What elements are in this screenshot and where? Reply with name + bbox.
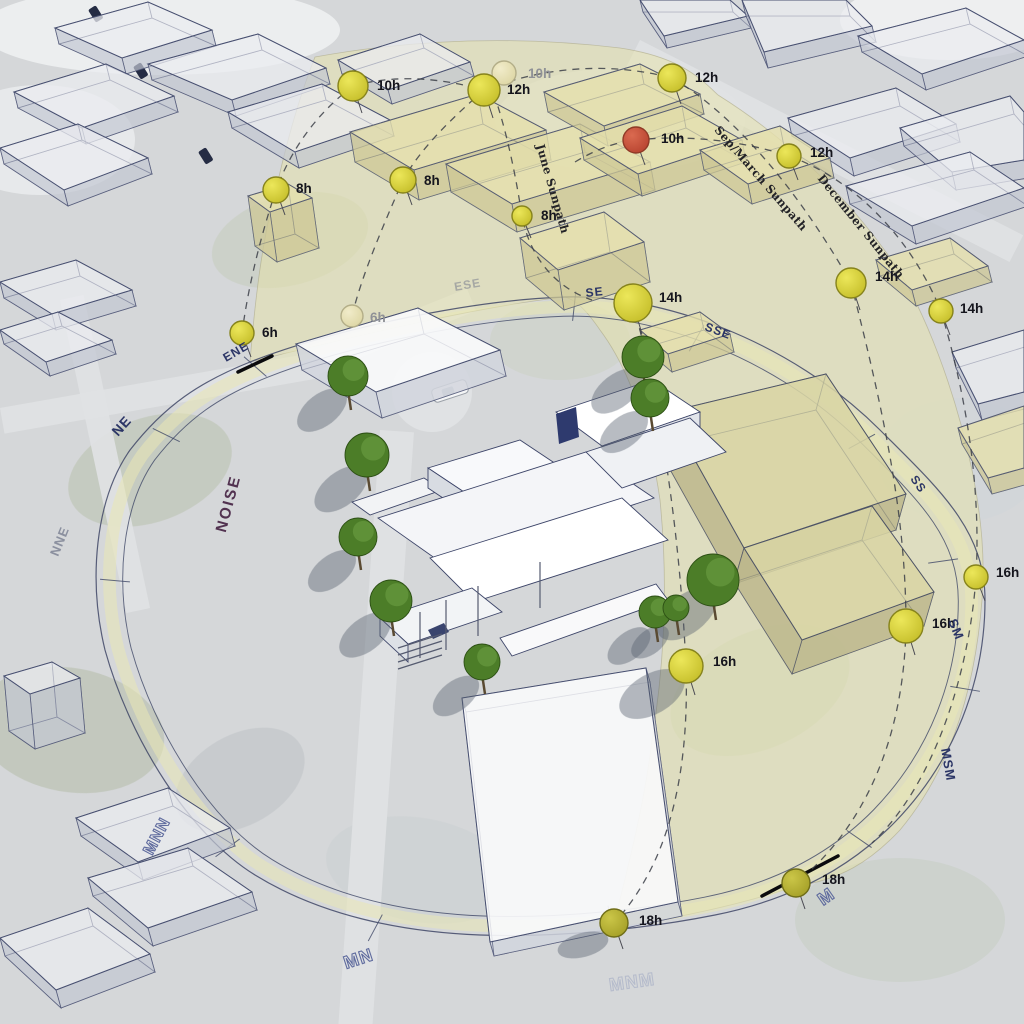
sun-hour-label: 10h — [377, 78, 400, 93]
sun-hour-label: 16h — [996, 565, 1019, 580]
sun-circle — [669, 649, 703, 683]
tree-highlight — [645, 382, 666, 403]
tree-highlight — [672, 597, 686, 611]
building — [4, 662, 85, 749]
sun-circle — [777, 144, 801, 168]
sun-circle — [338, 71, 368, 101]
sun-hour-label: 8h — [424, 173, 440, 188]
sun-hour-label: 6h — [262, 325, 278, 340]
sun-hour-label: 12h — [507, 82, 530, 97]
sun-hour-label: 18h — [639, 913, 662, 928]
sun-hour-label: 14h — [960, 301, 983, 316]
sun-hour-label: 10h — [661, 131, 684, 146]
sun-hour-label: 14h — [659, 290, 682, 305]
sun-circle — [341, 305, 363, 327]
sun-circle — [889, 609, 923, 643]
tree-highlight — [637, 339, 660, 362]
tree-highlight — [343, 359, 365, 381]
sun-circle — [600, 909, 628, 937]
tree-highlight — [385, 583, 408, 606]
sun-hour-label: 16h — [713, 654, 736, 669]
sun-hour-label: 6h — [370, 310, 386, 325]
sun-circle — [782, 869, 810, 897]
sun-circle — [623, 127, 649, 153]
tree-highlight — [706, 558, 735, 587]
tree-highlight — [353, 521, 374, 542]
sun-circle — [512, 206, 532, 226]
sun-circle — [263, 177, 289, 203]
tree-highlight — [477, 647, 497, 667]
sun-hour-label: 12h — [810, 145, 833, 160]
sun-circle — [614, 284, 652, 322]
diagram-canvas: 6h6h8h8h8h10h10h10h12h12h12h14h14h14h16h… — [0, 0, 1024, 1024]
sun-circle — [658, 64, 686, 92]
sunpath-diagram: 6h6h8h8h8h10h10h10h12h12h12h14h14h14h16h… — [0, 0, 1024, 1024]
sun-hour-label: 12h — [695, 70, 718, 85]
sun-circle — [390, 167, 416, 193]
sun-circle — [468, 74, 500, 106]
sun-circle — [929, 299, 953, 323]
sun-hour-label: 10h — [528, 66, 551, 81]
compass-label: SE — [585, 284, 604, 300]
sun-hour-label: 8h — [296, 181, 312, 196]
sun-circle — [964, 565, 988, 589]
tree-highlight — [361, 436, 385, 460]
sun-circle — [836, 268, 866, 298]
